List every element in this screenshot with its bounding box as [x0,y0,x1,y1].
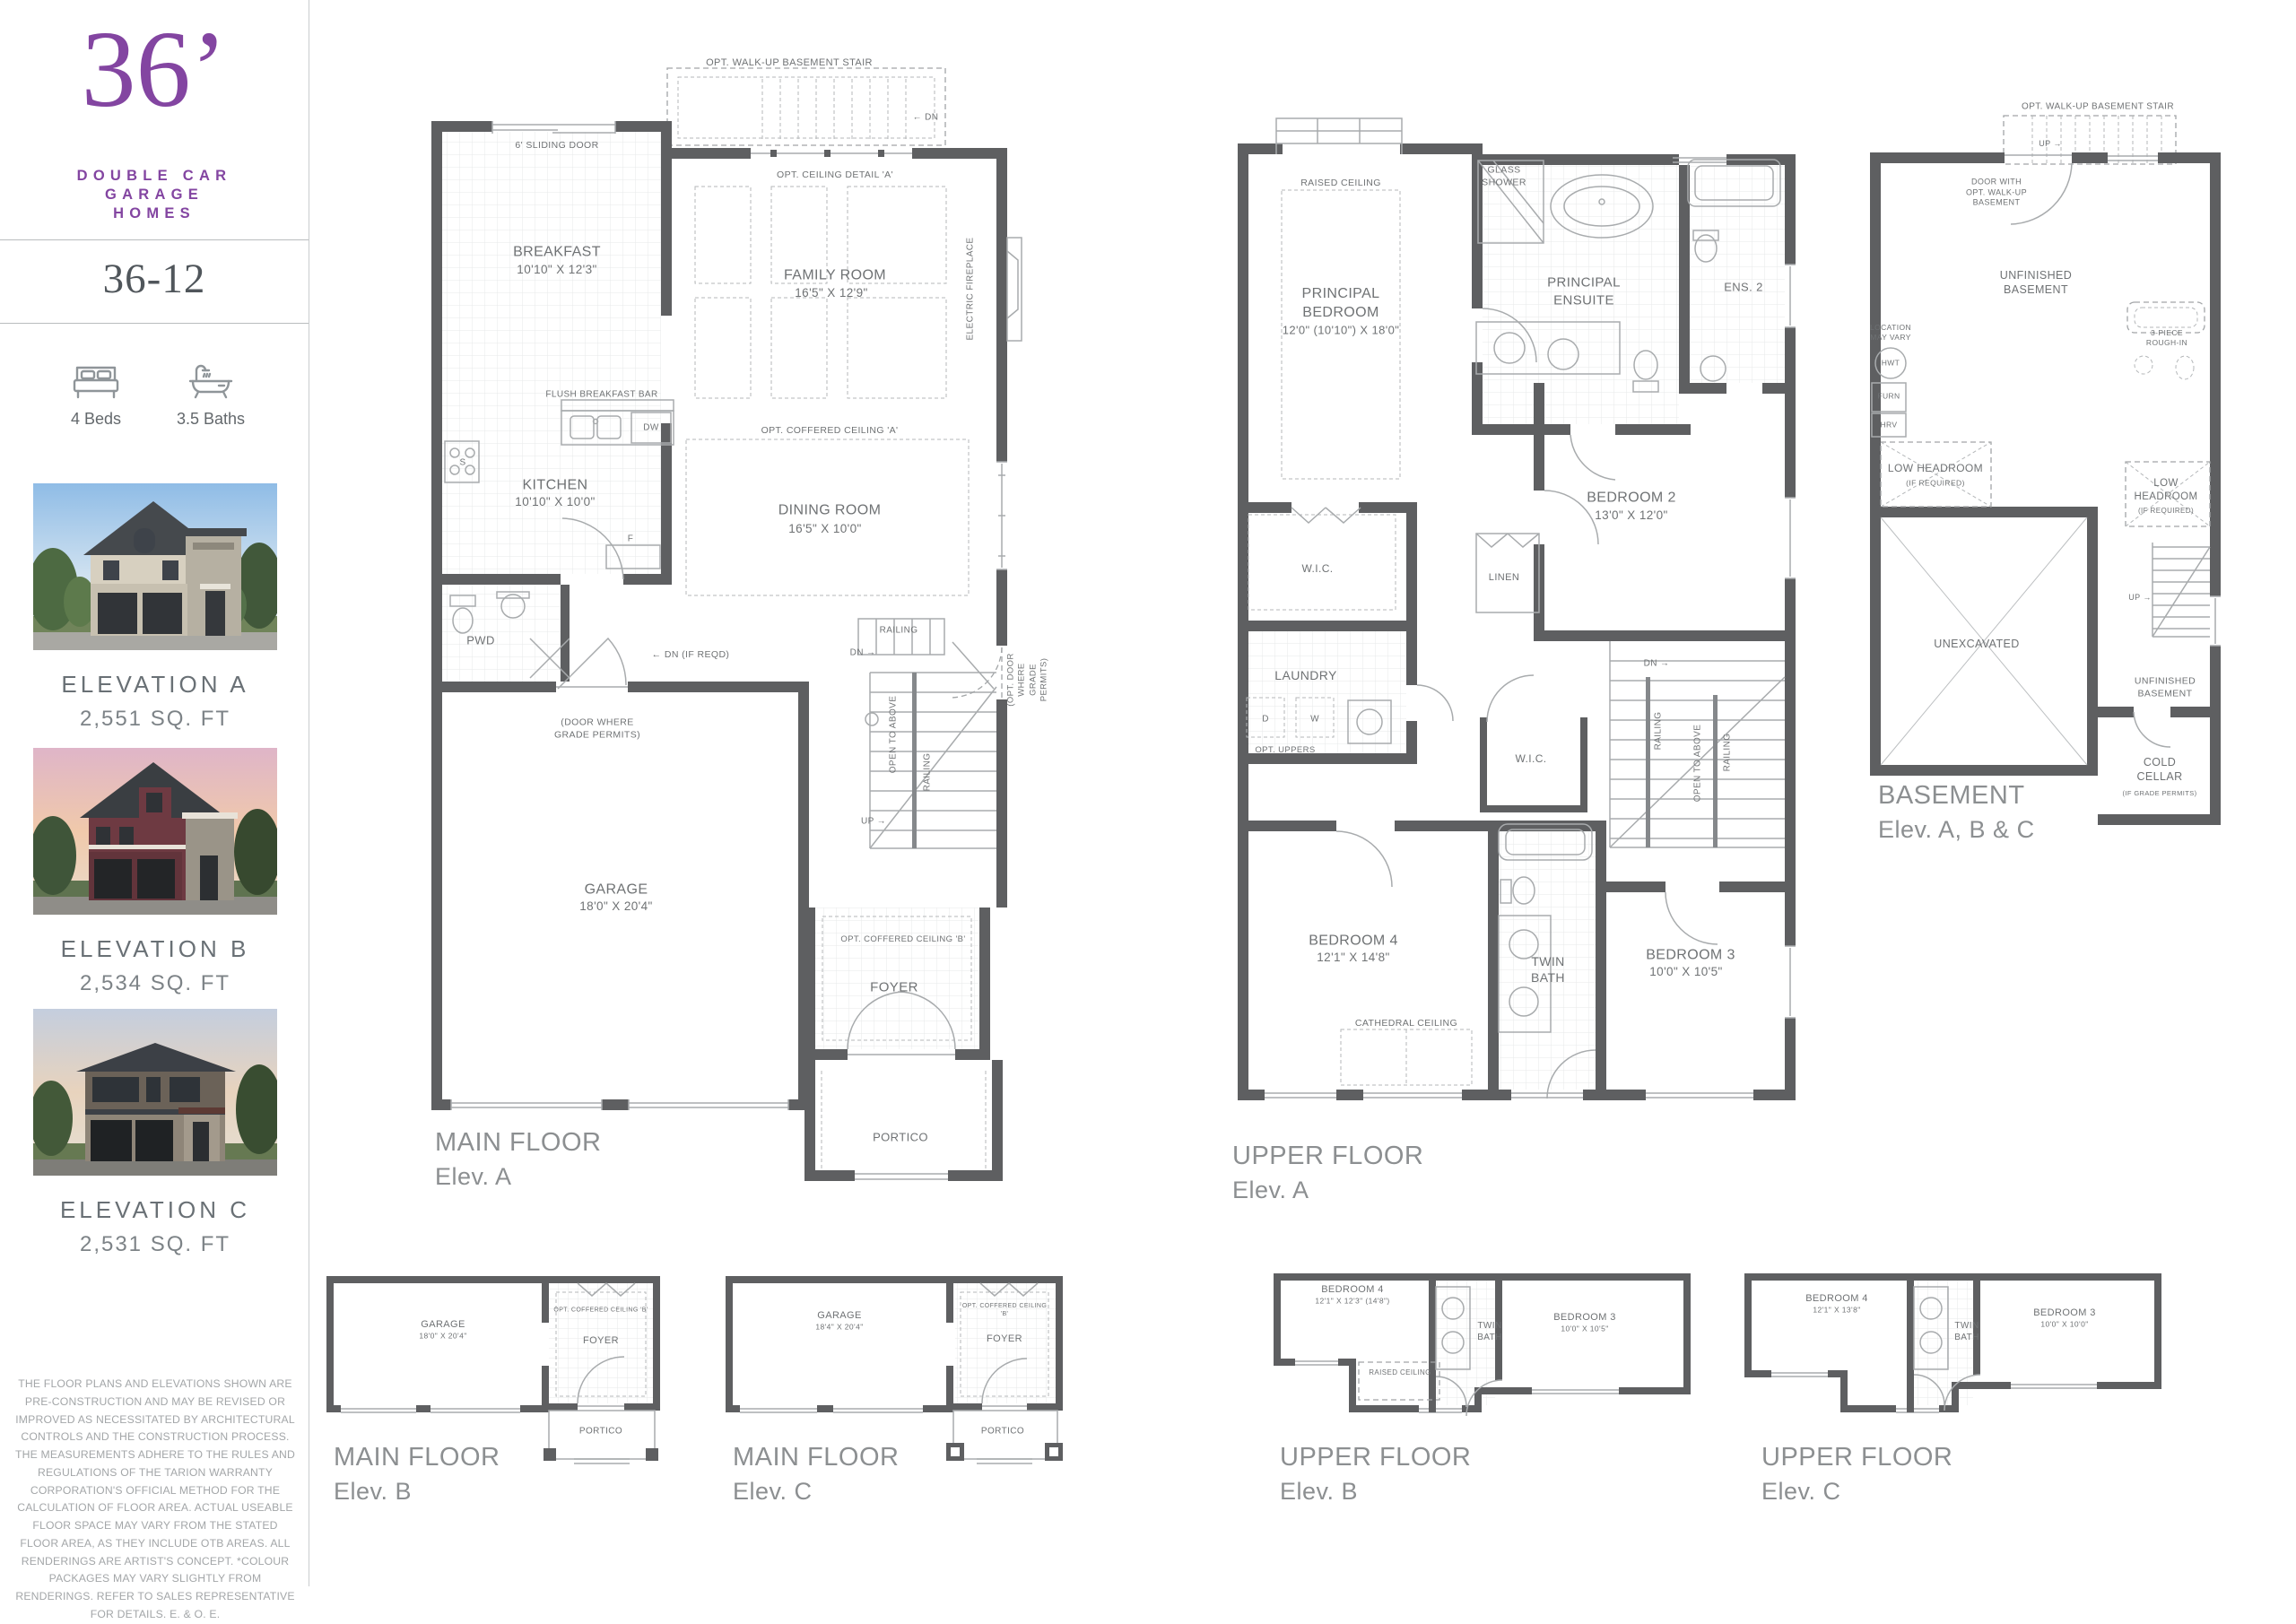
plan-label: FOYER [583,1334,619,1347]
plan-label: GARAGE [817,1309,861,1322]
plan-label: TWIN BATH [1531,953,1565,986]
plan-label: COLD CELLAR [2136,755,2182,785]
upper-floor-c-title: UPPER FLOOR Elev. C [1761,1445,1952,1504]
plan-label: FURN [1877,391,1900,401]
upper-floor-a-labels: RAISED CEILINGPRINCIPAL BEDROOM12'0" (10… [1224,103,1816,1242]
plan-label: BEDROOM 3 [2033,1307,2096,1319]
plan-label: UNFINISHED BASEMENT [2000,268,2072,298]
plan-label: 18'0" X 20'4" [579,899,653,915]
plan-label: 18'0" X 20'4" [419,1331,466,1341]
elevation-b-name: ELEVATION B [33,935,277,963]
bath-icon [185,362,237,402]
divider [0,239,309,240]
plan-label: (IF REQUIRED) [1906,478,1965,488]
plan-label: RAISED CEILING [1369,1368,1431,1377]
plan-label: KITCHEN [522,477,587,496]
plan-title-text: UPPER FLOOR [1232,1143,1423,1169]
plan-label: (OPT. DOOR WHERE GRADE PERMITS) [1005,651,1049,708]
plan-title-text: BASEMENT [1878,783,2035,809]
plan-label: 16'5" X 10'0" [788,521,862,537]
elevation-b-sqft: 2,534 SQ. FT [33,971,277,996]
plan-label: BEDROOM 4 [1321,1283,1384,1296]
basement-title: BASEMENT Elev. A, B & C [1878,783,2035,842]
plan-label: BEDROOM 3 [1553,1311,1616,1324]
plan-label: 10'0" X 10'0" [2040,1319,2088,1329]
plan-title-text: UPPER FLOOR [1280,1445,1471,1471]
elevation-b-photo [33,747,277,916]
plan-label: HRV [1881,420,1898,430]
plan-subtitle-text: Elev. B [334,1480,500,1504]
plan-label: LOW HEADROOM [2135,477,2198,504]
plan-subtitle-text: Elev. C [733,1480,899,1504]
plan-label: OPT. CEILING DETAIL 'A' [777,169,893,182]
plan-label: ← DN (IF REQD) [652,649,730,662]
plan-label: OPT. COFFERED CEILING 'B' [959,1302,1051,1318]
elevation-a-card: ELEVATION A 2,551 SQ. FT [33,482,277,732]
plan-label: GARAGE [585,881,648,900]
plan-label: 12'1" X 13'8" [1813,1305,1860,1315]
plan-label: UNEXCAVATED [1934,637,2019,651]
plan-label: (IF REQUIRED) [2138,507,2194,516]
plan-label: GARAGE [421,1318,465,1331]
plan-subtitle-text: Elev. A, B & C [1878,818,2035,842]
plan-label: PWD [466,634,495,649]
plan-label: 12'0" (10'10") X 18'0" [1283,324,1400,339]
plan-label: ← DN [913,112,939,124]
plan-label: OPEN TO ABOVE [1692,725,1704,803]
plan-label: PRINCIPAL ENSUITE [1547,274,1621,309]
plan-label: 6' SLIDING DOOR [515,140,598,152]
plan-label: RAILING [922,753,934,792]
plan-label: FOYER [987,1333,1022,1345]
plan-label: TWIN BATH [1954,1320,1979,1343]
plan-label: 3-PIECE ROUGH-IN [2146,328,2187,348]
plan-label: DN → [1644,658,1670,670]
plan-title-text: MAIN FLOOR [435,1130,601,1156]
plan-title-text: UPPER FLOOR [1761,1445,1952,1471]
elevation-c-photo [33,1008,277,1177]
plan-label: S [459,457,465,469]
plan-label: PORTICO [981,1426,1024,1437]
elevation-c-sqft: 2,531 SQ. FT [33,1232,277,1257]
plan-label: 12'1" X 14'8" [1317,950,1390,966]
plan-label: 10'0" X 10'5" [1561,1324,1608,1333]
plan-label: OPEN TO ABOVE [888,696,900,774]
elevation-a-name: ELEVATION A [33,671,277,699]
tagline-line-3: HOMES [0,204,309,223]
plan-label: FLUSH BREAKFAST BAR [545,389,657,401]
plan-label: FAMILY ROOM [784,267,886,286]
upper-floor-plan-elev-b: BEDROOM 412'1" X 12'3" (14'8")TWIN BATHB… [1269,1269,1709,1538]
plan-label: ENS. 2 [1724,281,1763,296]
plan-label: LOCATION MAY VARY [1870,323,1911,343]
main-floor-plan-elev-a: OPT. WALK-UP BASEMENT STAIR← DN6' SLIDIN… [422,54,1085,1211]
upper-floor-plan-elev-c: BEDROOM 412'1" X 13'8"TWIN BATHBEDROOM 3… [1740,1269,2179,1538]
main-floor-a-labels: OPT. WALK-UP BASEMENT STAIR← DN6' SLIDIN… [422,54,1085,1211]
upper-floor-plan-elev-a: RAISED CEILINGPRINCIPAL BEDROOM12'0" (10… [1224,103,1816,1242]
plan-label: RAILING [1722,734,1734,772]
plan-title-text: MAIN FLOOR [334,1445,500,1471]
plan-label: (IF GRADE PERMITS) [2122,789,2196,798]
tagline-line-1: DOUBLE CAR [0,167,309,186]
plan-label: DN → [850,647,876,659]
plan-label: BEDROOM 3 [1646,947,1735,966]
elevation-c-card: ELEVATION C 2,531 SQ. FT [33,1008,277,1257]
plan-label: HWT [1882,358,1900,368]
plan-label: W.I.C. [1515,752,1546,767]
plan-label: OPT. WALK-UP BASEMENT STAIR [706,56,873,69]
elevation-b-card: ELEVATION B 2,534 SQ. FT [33,747,277,996]
plan-label: OPT. COFFERED CEILING 'B' [840,934,965,945]
plan-label: F [628,534,634,545]
plan-label: 10'10" X 10'0" [515,494,595,510]
plan-label: 13'0" X 12'0" [1595,508,1668,524]
plan-subtitle-text: Elev. B [1280,1480,1471,1504]
plan-subtitle-text: Elev. C [1761,1480,1952,1504]
main-floor-plan-elev-b: GARAGE18'0" X 20'4"OPT. COFFERED CEILING… [321,1269,698,1538]
main-floor-c-title: MAIN FLOOR Elev. C [733,1445,899,1504]
plan-label: UNFINISHED BASEMENT [2135,675,2196,699]
plan-label: BEDROOM 4 [1805,1292,1868,1305]
upper-floor-b-title: UPPER FLOOR Elev. B [1280,1445,1471,1504]
plan-label: LINEN [1489,571,1519,584]
plan-label: W.I.C. [1301,562,1333,577]
sidebar: 36’ DOUBLE CAR GARAGE HOMES 36-12 4 Beds [0,0,309,1586]
elevation-a-sqft: 2,551 SQ. FT [33,707,277,732]
tagline-line-2: GARAGE [0,186,309,204]
plan-label: GLASS SHOWER [1482,164,1526,188]
plan-label: OPT. UPPERS [1255,745,1315,756]
basement-plan: OPT. WALK-UP BASEMENT STAIRUP →DOOR WITH… [1857,58,2296,883]
plan-label: DINING ROOM [778,502,882,521]
plan-label: PORTICO [579,1426,622,1437]
baths-stat: 3.5 Baths [161,362,260,429]
plan-label: BREAKFAST [513,244,601,263]
elevation-c-name: ELEVATION C [33,1196,277,1224]
plan-label: PORTICO [873,1131,928,1146]
plan-label: 16'5" X 12'9" [795,285,868,301]
main-floor-a-title: MAIN FLOOR Elev. A [435,1130,601,1189]
brand-tagline: DOUBLE CAR GARAGE HOMES [0,167,309,222]
plan-label: DOOR WITH OPT. WALK-UP BASEMENT [1966,177,2027,208]
plan-label: W [1310,714,1319,725]
main-floor-b-title: MAIN FLOOR Elev. B [334,1445,500,1504]
brand-logo-number: 36’ [0,13,309,127]
plan-label: UP → [861,816,886,828]
bed-icon [70,362,122,402]
plan-label: TWIN BATH [1477,1320,1502,1343]
elevation-a-photo [33,482,277,651]
plan-label: D [1262,714,1269,725]
plan-label: PRINCIPAL BEDROOM [1302,285,1380,323]
plan-label: CATHEDRAL CEILING [1355,1018,1457,1030]
baths-label: 3.5 Baths [161,410,260,429]
basement-labels: OPT. WALK-UP BASEMENT STAIRUP →DOOR WITH… [1857,58,2296,883]
plan-label: BEDROOM 2 [1587,490,1676,508]
plan-label: LAUNDRY [1274,667,1336,683]
plan-label: FOYER [870,978,918,996]
plan-label: OPT. WALK-UP BASEMENT STAIR [2022,101,2174,113]
plan-subtitle-text: Elev. A [435,1165,601,1189]
beds-stat: 4 Beds [47,362,145,429]
model-number: 36-12 [0,255,309,303]
main-floor-plan-elev-c: GARAGE18'4" X 20'4"OPT. COFFERED CEILING… [720,1269,1097,1538]
floorplan-brochure-page: 36’ DOUBLE CAR GARAGE HOMES 36-12 4 Beds [0,0,2296,1586]
plan-label: 10'0" X 10'5" [1649,964,1723,980]
plan-subtitle-text: Elev. A [1232,1178,1423,1203]
plan-label: UP → [2039,139,2061,150]
plan-label: DW [643,422,658,434]
plan-label: (DOOR WHERE GRADE PERMITS) [554,716,640,741]
plan-label: 18'4" X 20'4" [815,1322,863,1332]
plan-label: RAILING [1653,712,1665,751]
plan-label: RAISED CEILING [1300,178,1381,190]
legal-disclaimer: THE FLOOR PLANS AND ELEVATIONS SHOWN ARE… [13,1376,298,1624]
plan-label: OPT. COFFERED CEILING 'A' [761,425,899,438]
divider [0,323,309,324]
plan-label: BEDROOM 4 [1309,933,1398,951]
plan-label: RAILING [880,625,918,637]
plan-label: ELECTRIC FIREPLACE [965,237,977,340]
beds-label: 4 Beds [47,410,145,429]
plan-label: 10'10" X 12'3" [517,262,596,278]
plan-label: 12'1" X 12'3" (14'8") [1315,1296,1389,1306]
plan-label: UP → [2128,593,2151,604]
upper-floor-a-title: UPPER FLOOR Elev. A [1232,1143,1423,1203]
plan-label: OPT. COFFERED CEILING 'B' [553,1306,648,1314]
plan-title-text: MAIN FLOOR [733,1445,899,1471]
plan-label: LOW HEADROOM [1888,462,1983,476]
